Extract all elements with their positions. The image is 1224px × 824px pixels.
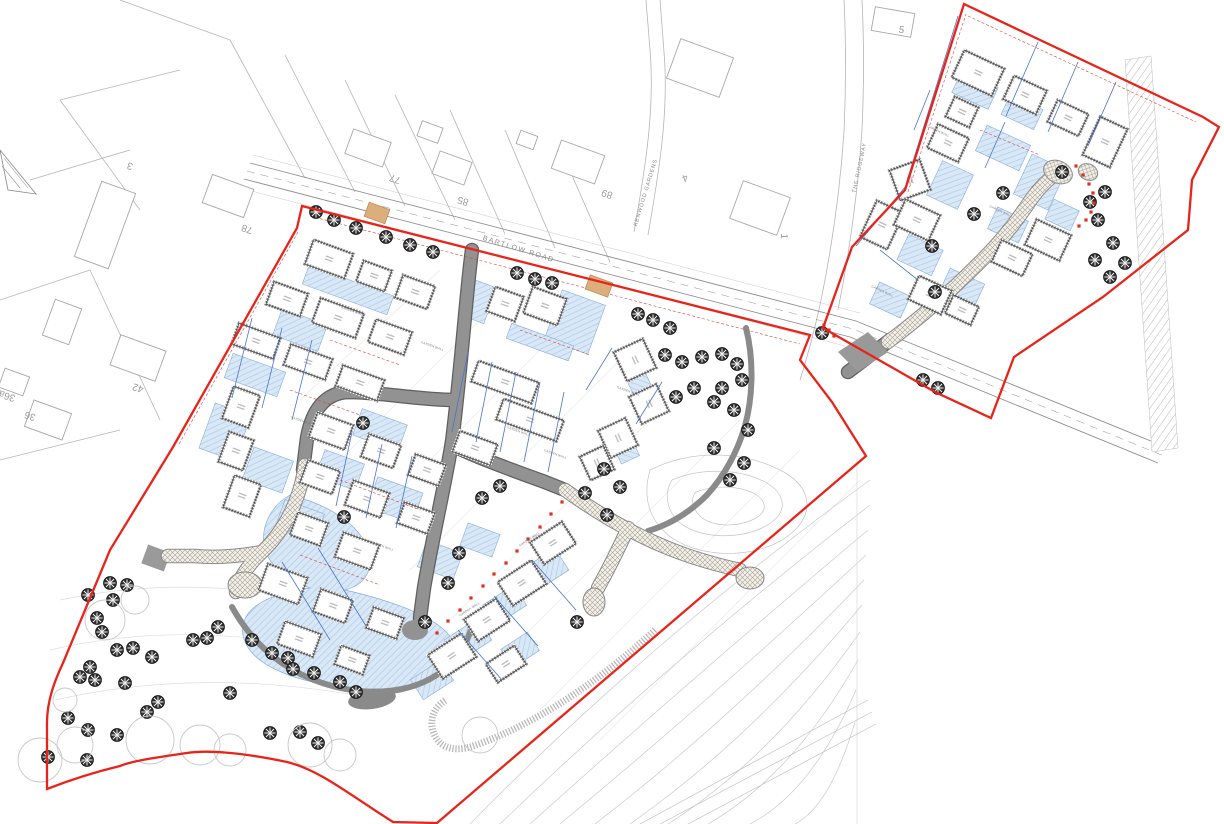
tree-icon bbox=[1099, 186, 1112, 199]
canopy-tree-icon bbox=[121, 586, 149, 614]
building-footprint bbox=[368, 319, 412, 355]
driveway-patch bbox=[975, 125, 1030, 171]
tree-icon bbox=[82, 724, 95, 737]
context-house-outline bbox=[345, 129, 391, 167]
tree-icon bbox=[89, 674, 102, 687]
tree-icon bbox=[929, 286, 942, 299]
canopy-tree-icon bbox=[462, 717, 498, 753]
tree-icon bbox=[350, 222, 363, 235]
marker-dot bbox=[1077, 224, 1080, 227]
building-footprint bbox=[397, 502, 435, 534]
tree-icon bbox=[419, 616, 432, 629]
house-number-label: 3 bbox=[125, 159, 134, 171]
marker-dot bbox=[1087, 182, 1090, 185]
tree-icon bbox=[201, 632, 214, 645]
context-house-outline bbox=[730, 181, 791, 236]
tree-icon bbox=[287, 663, 300, 676]
building-footprint bbox=[894, 199, 940, 240]
tree-icon bbox=[968, 208, 981, 221]
tree-icon bbox=[736, 374, 749, 387]
tree-icon bbox=[708, 442, 721, 455]
house-number-label: 78 bbox=[240, 221, 254, 235]
house-number-label: 42 bbox=[131, 380, 145, 394]
trees-layer bbox=[18, 166, 1132, 783]
tree-icon bbox=[708, 396, 721, 409]
tree-icon bbox=[357, 417, 370, 430]
tree-icon bbox=[476, 492, 489, 505]
tree-icon bbox=[308, 667, 321, 680]
marker-dot bbox=[1084, 218, 1087, 221]
marker-dot bbox=[560, 500, 563, 503]
marker-dot bbox=[1091, 191, 1094, 194]
tree-icon bbox=[926, 240, 939, 253]
tree-icon bbox=[453, 547, 466, 560]
building-footprint bbox=[614, 339, 657, 382]
building-footprint bbox=[530, 522, 576, 565]
tree-icon bbox=[104, 577, 117, 590]
tree-icon bbox=[187, 634, 200, 647]
marker-dot bbox=[435, 631, 438, 634]
house-number-label: 85 bbox=[456, 193, 470, 207]
tree-icon bbox=[404, 239, 417, 252]
tree-icon bbox=[246, 634, 259, 647]
canopy-tree-icon bbox=[53, 688, 77, 712]
tree-icon bbox=[731, 358, 744, 371]
tree-icon bbox=[350, 686, 363, 699]
tree-icon bbox=[688, 382, 701, 395]
building-footprint bbox=[284, 344, 333, 380]
tree-icon bbox=[511, 267, 524, 280]
tree-icon bbox=[728, 404, 741, 417]
context-house-outline bbox=[667, 39, 734, 98]
driveway-patch bbox=[897, 234, 943, 275]
context-house-outline bbox=[74, 181, 135, 268]
context-house-outline bbox=[110, 335, 166, 381]
tree-icon bbox=[647, 314, 660, 327]
survey-extent-lines bbox=[640, 458, 876, 824]
building-footprint bbox=[266, 282, 308, 317]
house-number-label: 77 bbox=[388, 171, 402, 185]
marker-dot bbox=[446, 619, 449, 622]
site-plan-drawing: BARTLOW ROADKENWOOD GARDENSTHE RIDGEWAY7… bbox=[0, 0, 1224, 824]
marker-dot bbox=[1089, 210, 1092, 213]
tree-icon bbox=[571, 616, 584, 629]
tree-icon bbox=[119, 677, 132, 690]
house-number-label: 1 bbox=[778, 233, 789, 240]
tree-icon bbox=[664, 322, 677, 335]
tree-icon bbox=[632, 308, 645, 321]
marker-dot bbox=[1092, 201, 1095, 204]
tree-icon bbox=[442, 577, 455, 590]
marker-dot bbox=[504, 561, 507, 564]
tree-icon bbox=[598, 463, 611, 476]
driveway-patch bbox=[460, 523, 500, 557]
plot-boundary-line bbox=[586, 348, 612, 390]
tree-icon bbox=[266, 647, 279, 660]
building-footprint bbox=[309, 412, 354, 449]
garden-wall-label: GARDEN WALL bbox=[420, 340, 444, 352]
tree-icon bbox=[601, 509, 614, 522]
tree-icon bbox=[1089, 254, 1102, 267]
tree-icon bbox=[676, 356, 689, 369]
canopy-tree-icon bbox=[57, 727, 93, 763]
map-labels: BARTLOW ROADKENWOOD GARDENSTHE RIDGEWAY7… bbox=[0, 25, 1012, 618]
context-house-outline bbox=[432, 151, 472, 185]
tree-icon bbox=[716, 348, 729, 361]
tree-icon bbox=[312, 737, 325, 750]
tree-icon bbox=[146, 651, 159, 664]
building-footprint bbox=[889, 159, 930, 200]
context-house-outline bbox=[516, 130, 538, 149]
tree-icon bbox=[380, 231, 393, 244]
tree-icon bbox=[427, 246, 440, 259]
tree-icon bbox=[338, 511, 351, 524]
tree-icon bbox=[738, 457, 751, 470]
tree-icon bbox=[716, 382, 729, 395]
tree-icon bbox=[224, 687, 237, 700]
tree-icon bbox=[614, 481, 627, 494]
garden-wall-label: GARDEN WALL bbox=[543, 448, 567, 460]
tree-icon bbox=[724, 474, 737, 487]
tree-icon bbox=[997, 187, 1010, 200]
tree-icon bbox=[91, 612, 104, 625]
tree-icon bbox=[96, 626, 109, 639]
marker-dot bbox=[538, 525, 541, 528]
canopy-tree-icon bbox=[18, 738, 62, 782]
tree-icon bbox=[1104, 271, 1117, 284]
road-name-label: THE RIDGEWAY bbox=[852, 142, 869, 194]
tree-icon bbox=[1092, 214, 1105, 227]
canopy-tree-icon bbox=[214, 734, 246, 766]
tree-icon bbox=[81, 754, 94, 767]
building-footprint bbox=[408, 454, 446, 486]
building-footprint bbox=[452, 431, 497, 465]
marker-dot bbox=[515, 549, 518, 552]
tree-icon bbox=[742, 424, 755, 437]
marker-dot bbox=[492, 572, 495, 575]
context-house-outline bbox=[42, 299, 81, 344]
context-house-outline bbox=[871, 7, 915, 38]
context-house-outline bbox=[417, 121, 443, 144]
building-footprint bbox=[222, 386, 260, 428]
marker-dot bbox=[1081, 173, 1084, 176]
house-number-label: 4 bbox=[680, 171, 689, 183]
context-house-outline bbox=[551, 140, 604, 184]
tree-icon bbox=[127, 642, 140, 655]
tree-icon bbox=[494, 480, 507, 493]
building-footprint bbox=[523, 287, 566, 326]
tree-icon bbox=[546, 277, 559, 290]
tree-icon bbox=[1056, 166, 1069, 179]
tree-icon bbox=[212, 621, 225, 634]
tree-icon bbox=[294, 726, 307, 739]
tree-icon bbox=[111, 644, 124, 657]
tree-icon bbox=[152, 696, 165, 709]
building-footprint bbox=[486, 287, 523, 322]
tree-icon bbox=[111, 729, 124, 742]
tree-icon bbox=[529, 273, 542, 286]
canopy-tree-icon bbox=[180, 725, 220, 765]
site-boundary-main bbox=[47, 206, 866, 823]
canopy-tree-icon bbox=[324, 739, 356, 771]
tree-icon bbox=[670, 391, 683, 404]
marker-dot bbox=[481, 584, 484, 587]
marker-dot bbox=[1074, 164, 1077, 167]
north-arrow bbox=[0, 150, 36, 194]
tree-icon bbox=[264, 727, 277, 740]
building-footprint bbox=[1083, 117, 1128, 168]
tree-icon bbox=[696, 351, 709, 364]
plot-lines-layer bbox=[232, 16, 1116, 680]
house-number-label: 89 bbox=[600, 186, 614, 200]
tree-icon bbox=[1119, 257, 1132, 270]
kenwood-gardens-road bbox=[634, 0, 665, 235]
building-footprint bbox=[223, 475, 261, 517]
driveway-patch bbox=[927, 161, 974, 210]
tree-icon bbox=[62, 712, 75, 725]
tree-icon bbox=[579, 487, 592, 500]
tree-icon bbox=[1107, 237, 1120, 250]
context-house-outline bbox=[202, 174, 254, 217]
tree-icon bbox=[659, 349, 672, 362]
tree-icon bbox=[84, 661, 97, 674]
tree-icon bbox=[74, 671, 87, 684]
marker-dot bbox=[549, 512, 552, 515]
tree-icon bbox=[121, 579, 134, 592]
marker-dot bbox=[469, 596, 472, 599]
building-footprint bbox=[471, 361, 539, 404]
tree-icon bbox=[334, 676, 347, 689]
railway-strip bbox=[1125, 56, 1178, 452]
